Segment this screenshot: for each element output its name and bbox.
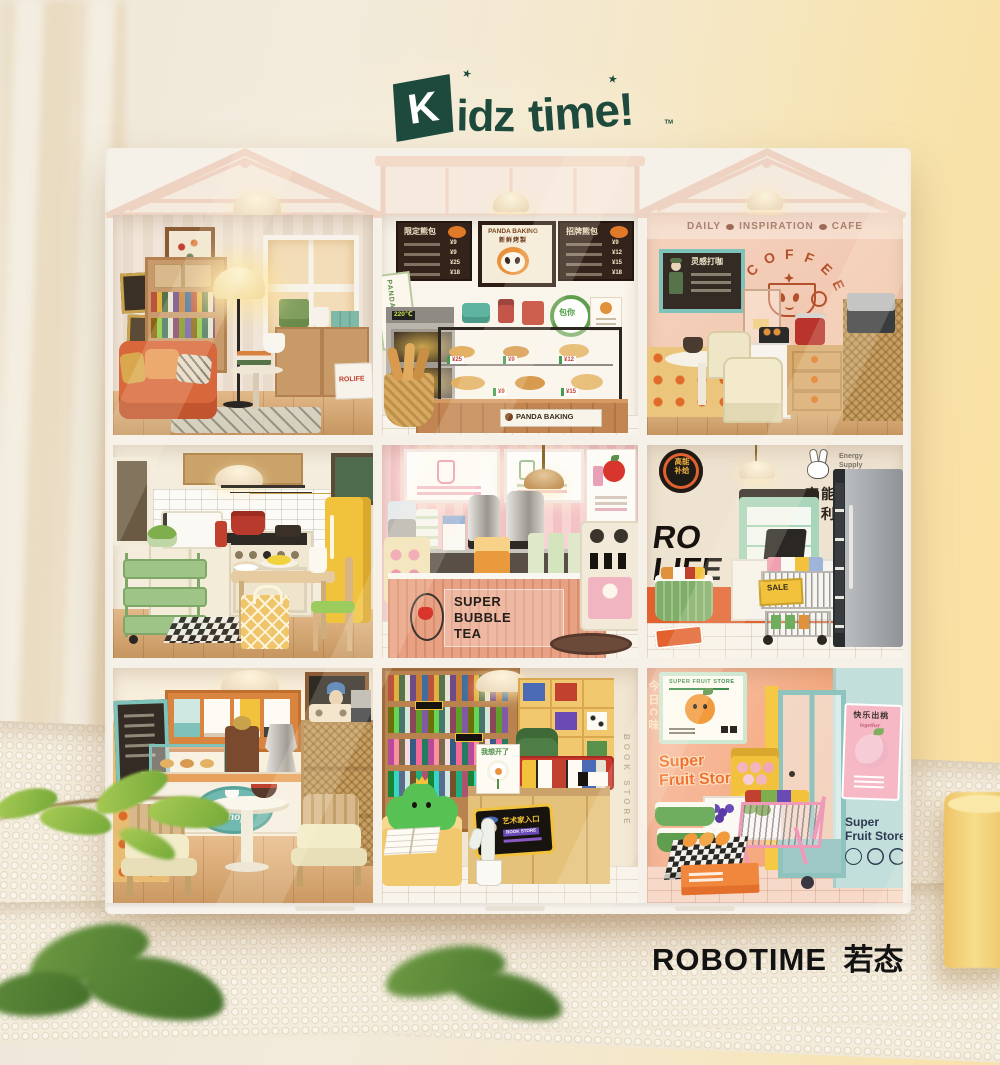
- open-comic: [384, 827, 441, 856]
- logo-time: time!: [527, 86, 635, 139]
- fruit-poster-smalltext: [669, 728, 695, 730]
- coffee-grinder: [225, 726, 259, 776]
- kitchen-window: [113, 457, 151, 545]
- star-icon: ★: [460, 68, 473, 81]
- pink-cart-basket: [737, 802, 826, 848]
- case-tag-4: ¥9: [493, 388, 507, 396]
- cake-stand: [462, 303, 490, 323]
- logo-k-block: K: [388, 74, 458, 142]
- market-en-2: Supply: [839, 462, 862, 469]
- price-3: ¥25: [450, 260, 460, 266]
- cafe-chair-front: [723, 357, 783, 423]
- dollhouse: ROLIFE 限定熊包 ¥9 ¥9 ¥25 ¥18 PANDA BAKING 新…: [105, 148, 911, 914]
- special-badge: [448, 226, 466, 238]
- cafe-menu-line-3: [691, 289, 731, 292]
- bread-display-case: ¥25 ¥9 ¥12 ¥9 ¥15: [438, 327, 622, 407]
- moka-pot: [265, 724, 297, 776]
- bunny-logo: [805, 449, 833, 479]
- orange-crate: [681, 863, 760, 896]
- chair-back: [345, 557, 353, 631]
- price-r1: ¥9: [612, 240, 619, 246]
- orange-leaf: [703, 688, 713, 695]
- wall-art-f1: F: [785, 247, 794, 261]
- bookstore-vertical-sign: BOOK STORE: [622, 734, 630, 828]
- teapot: [683, 337, 703, 353]
- price-2: ¥9: [450, 250, 457, 256]
- shopping-cart: SALE: [755, 565, 837, 647]
- menu-line-r2: [566, 253, 602, 256]
- shelf-tag-black-2: [455, 733, 483, 742]
- bakery-menu-right: 招牌熊包 ¥9 ¥12 ¥15 ¥18: [558, 221, 634, 281]
- fruit-side-line2: Fruit Store: [845, 830, 903, 842]
- white-jug: [313, 307, 329, 327]
- gray-fridge-handle: [849, 505, 853, 589]
- counter-sign-text: PANDA BAKING: [516, 413, 574, 421]
- coffee-machine-silver: [847, 293, 895, 333]
- candle-top: [948, 795, 1000, 813]
- wall-art-c: C: [744, 261, 761, 278]
- bakery-menu-center-title: PANDA BAKING: [482, 229, 544, 236]
- chair-legs: [313, 613, 318, 651]
- tomato-leaf: [611, 455, 619, 461]
- room-fruit-store: SUPER FRUIT STORE 今日C味 Super Fruit Store…: [647, 668, 903, 903]
- drawer-knob-1: [811, 356, 818, 363]
- bunny-card-icon: [600, 302, 612, 314]
- armchair-right-legs: [297, 866, 303, 886]
- round-sign-text: 包你: [559, 309, 575, 317]
- logo-idz: idz: [456, 94, 515, 139]
- machine-vents: [590, 529, 604, 543]
- sofa-cushion-orange: [145, 349, 179, 379]
- book-spines-top: [151, 292, 215, 312]
- book-stack: [237, 351, 271, 365]
- base-slot-2: [485, 906, 545, 911]
- cubby-box-red: [555, 683, 577, 701]
- bakery-menu-center-sub: 新鲜烤製: [482, 238, 544, 244]
- oven-display: 220℃: [392, 311, 415, 320]
- entrance-sign-line: [504, 837, 542, 843]
- menu-line-r4: [566, 273, 602, 276]
- case-shelf-line: [441, 364, 613, 366]
- market-badge: 高能补给: [659, 449, 703, 493]
- market-en-1: Energy: [839, 453, 863, 460]
- bubble-sign-line1: SUPER: [454, 595, 501, 608]
- price-r2: ¥12: [612, 250, 622, 256]
- entrance-sign-text: 艺术家入口: [502, 815, 540, 825]
- glass-word-inspiration: INSPIRATION: [739, 222, 814, 232]
- armchair-left-legs: [127, 876, 133, 896]
- bread-5: [515, 376, 545, 390]
- kitchen-chair: [311, 557, 365, 649]
- doodle-drink: [437, 460, 455, 484]
- white-kettle: [263, 333, 285, 353]
- bakery-menu-right-title: 招牌熊包: [566, 228, 598, 236]
- bakery-menu-left-title: 限定熊包: [404, 228, 436, 236]
- peaches-row: [737, 762, 748, 773]
- entrance-sign-sub: BOOK STORE: [503, 827, 540, 836]
- jam-jar: [498, 299, 514, 323]
- scrambled-eggs: [267, 555, 291, 565]
- machine-spouts: [590, 553, 598, 569]
- bakery-menu-center: PANDA BAKING 新鲜烤製: [478, 221, 556, 287]
- teal-crate: [331, 311, 359, 327]
- market-wall-ro: RO: [651, 521, 703, 553]
- wall-art-o: O: [762, 249, 777, 266]
- drawer-knob-2: [811, 376, 818, 383]
- market-badge-text: 高能补给: [674, 457, 690, 475]
- brand-cn: 若态: [844, 944, 904, 977]
- armchair-left-seat: [121, 858, 197, 876]
- espresso-machine-top: [351, 690, 371, 722]
- bread-4: [451, 376, 485, 390]
- orange-mascot: [685, 694, 715, 724]
- house-base: [105, 903, 911, 914]
- price-4: ¥18: [450, 270, 460, 276]
- rolife-box: ROLIFE: [334, 362, 373, 399]
- pendant-lamp-right: [747, 190, 783, 210]
- room-living: ROLIFE: [113, 215, 373, 435]
- shelf-tag-black-1: [415, 701, 443, 710]
- coffee-bean-icon: [819, 224, 827, 230]
- sofa: [119, 341, 217, 419]
- cart-wheel-left: [129, 635, 138, 644]
- tea-cup: [225, 790, 239, 798]
- coffee-bean-icon: [726, 224, 734, 230]
- sofa-cushion-pattern: [176, 353, 213, 384]
- diamond-bag: [241, 595, 289, 649]
- bread-plate: [233, 561, 259, 571]
- cafe-menu-board: 灵感打咖: [659, 249, 745, 313]
- poster-card-teal: [174, 699, 200, 737]
- drawer-knob-3: [811, 396, 818, 403]
- fruit-poster: SUPER FRUIT STORE: [659, 672, 747, 744]
- daisy-center: [495, 768, 502, 775]
- cloud-eyes: [412, 802, 417, 808]
- sofa-cushion-gold: [119, 351, 147, 384]
- fruit-left-vertical: 今日C味: [647, 680, 658, 733]
- logo-tm: TM: [664, 120, 673, 126]
- strawberry-face: [418, 607, 433, 620]
- table-pedestal: [241, 810, 253, 866]
- peach-leaf: [874, 728, 884, 735]
- panda-icon-small: [505, 413, 513, 421]
- green-basket: [655, 575, 713, 621]
- qr-sticker: [578, 772, 608, 786]
- basket-goods: [661, 567, 705, 579]
- cup-eye-right: [792, 292, 800, 302]
- radio: [309, 704, 353, 722]
- base-slot-3: [675, 906, 735, 911]
- room-kitchen: [113, 445, 373, 658]
- cart-wheels: [763, 635, 773, 645]
- bubble-lamp: [542, 445, 545, 471]
- sauce-dispenser: [522, 301, 544, 325]
- bread-basket: [384, 373, 434, 427]
- door-knob: [789, 771, 795, 777]
- yellow-candle: [944, 792, 1000, 968]
- bag-handle: [253, 585, 283, 604]
- scene: ROLIFE 限定熊包 ¥9 ¥9 ¥25 ¥18 PANDA BAKING 新…: [0, 0, 1000, 1000]
- gray-fridge: [833, 469, 903, 647]
- cafe-menu-title: 灵感打咖: [691, 258, 723, 266]
- price-r3: ¥15: [612, 260, 622, 266]
- menu-line-r1: [566, 243, 602, 246]
- fruit-side-line1: Super: [845, 816, 879, 828]
- glass-word-daily: DAILY: [687, 222, 721, 232]
- bubble-sign-line2: BUBBLE: [454, 611, 511, 624]
- wall-art-f2: F: [803, 250, 816, 266]
- cactus-pot: [476, 860, 502, 886]
- wall-art-e2: E: [830, 278, 847, 293]
- doodle-lines: [417, 486, 481, 489]
- floor-lamp-shade: [213, 267, 265, 299]
- pendant-lamp-middle: [493, 192, 529, 212]
- poster-drink: [593, 466, 603, 486]
- coffee-machine-green: [279, 299, 309, 327]
- room-bakery: 限定熊包 ¥9 ¥9 ¥25 ¥18 PANDA BAKING 新鲜烤製: [382, 215, 638, 435]
- utensil-rail: [221, 485, 305, 488]
- kidztime-logo: K idz time! ★ ★ TM: [391, 47, 683, 148]
- cubby-box-purple: [555, 712, 577, 730]
- tomato-mascot: [603, 460, 625, 482]
- cart-tray-1: [123, 559, 207, 579]
- barista-apron: [669, 272, 683, 294]
- daisy-poster-text: 我想开了: [481, 749, 509, 756]
- tomato-poster: [586, 449, 636, 523]
- menu-line-3: [404, 263, 440, 266]
- price-r4: ¥18: [612, 270, 622, 276]
- fruit-poster-squares: [721, 726, 728, 733]
- peach-shape: [854, 733, 889, 768]
- room-market: 高能补给 Energy Supply Store 高能补给 便利店 RO LIF…: [647, 445, 903, 658]
- icecream-panel: [588, 577, 632, 619]
- case-tag-3: ¥12: [559, 356, 576, 364]
- stove-knobs: [235, 551, 243, 559]
- cafe-table-stem: [698, 363, 706, 405]
- burner-pan: [275, 525, 301, 537]
- armchair-right-seat: [291, 848, 367, 866]
- red-pot: [231, 511, 265, 535]
- croissants: [160, 759, 174, 768]
- wall-art-e1: E: [818, 261, 834, 278]
- cafe-glass-band: DAILY INSPIRATION CAFE: [647, 215, 903, 239]
- daisy-stem: [497, 779, 499, 789]
- cactus-body: [481, 818, 495, 864]
- menu-line-1: [404, 243, 440, 246]
- cloud-body: [388, 804, 456, 830]
- room-book-store: Book Store 我想开了 艺术家入口 BOOK STORE: [382, 668, 638, 903]
- cart-tray-2: [123, 587, 207, 607]
- board-lines: [124, 714, 154, 718]
- lettuce-bowl: [147, 525, 177, 547]
- bunny-card-line: [596, 318, 616, 320]
- logo-k: K: [405, 85, 441, 131]
- fridge-handle: [330, 515, 334, 559]
- case-tag-5: ¥15: [561, 388, 578, 396]
- star-icon: ★: [607, 74, 618, 86]
- daisy-poster: 我想开了: [476, 744, 520, 794]
- market-lamp: [739, 461, 775, 479]
- cubby-dice: [587, 712, 607, 730]
- milk-cartons: [442, 515, 466, 551]
- cup-smile: [785, 303, 794, 310]
- sale-sign-text: SALE: [767, 583, 789, 592]
- best-badge: [610, 226, 628, 238]
- peach-poster-lines: [854, 775, 884, 778]
- cafe-menu-line-2: [691, 281, 731, 284]
- rolife-box-label: ROLIFE: [339, 376, 365, 384]
- peach-poster: 快乐出桃 together: [841, 703, 902, 801]
- menu-line-2: [404, 253, 440, 256]
- cup-handle: [811, 291, 827, 307]
- cafe-menu-line-1: [691, 273, 731, 276]
- armchair-right: [281, 794, 367, 886]
- floor-lamp-base: [223, 401, 253, 408]
- chair-cushion: [311, 601, 355, 613]
- poster-lines: [595, 496, 627, 499]
- cubby-box-blue: [523, 683, 545, 701]
- orange-eyes: [693, 704, 697, 709]
- menu-line-r3: [566, 263, 602, 266]
- drawer-cabinet: [787, 345, 843, 415]
- icecream-machine: [580, 521, 638, 631]
- case-tag-2: ¥9: [503, 356, 517, 364]
- room-cafe: DAILY INSPIRATION CAFE I C O F F E E: [647, 215, 903, 435]
- table-foot: [225, 862, 269, 872]
- fruit-poster-rule: [669, 688, 729, 690]
- peach-poster-title: 快乐出桃: [853, 711, 889, 720]
- ketchup-bottle: [215, 521, 227, 547]
- floor-mat: [550, 633, 632, 655]
- bubble-sign-line3: TEA: [454, 627, 482, 640]
- fruit-poster-header: SUPER FRUIT STORE: [669, 680, 735, 686]
- book-spines-mid: [151, 318, 215, 338]
- bakery-counter: PANDA BAKING: [416, 399, 628, 433]
- bookshelf-row-2: [388, 707, 508, 733]
- price-1: ¥9: [450, 240, 457, 246]
- room-bubble-tea: SUPER BUBBLE TEA: [382, 445, 638, 658]
- green-basket-top: [655, 802, 715, 826]
- case-tag-1: ¥25: [447, 356, 464, 364]
- brand-lockup: ROBOTIME 若态: [652, 944, 904, 976]
- barista-cap: [670, 258, 682, 263]
- base-slot-1: [295, 906, 355, 911]
- steam-flower: [784, 273, 794, 283]
- orange-crate-label: [689, 872, 723, 876]
- fridge-inner-shelves: [835, 483, 844, 633]
- bunny-head: [807, 461, 829, 479]
- glass-word-cafe: CAFE: [832, 222, 863, 232]
- fruit-wall-line1: Super: [659, 753, 705, 771]
- brand-name: ROBOTIME: [652, 942, 827, 977]
- bunny-card-sign: [590, 297, 622, 331]
- espresso-machine-red: [795, 313, 825, 345]
- cardboard-box: [154, 264, 212, 288]
- white-cactus: [468, 818, 506, 888]
- grinder-hopper: [233, 716, 251, 730]
- fruit-side-badges: [845, 848, 862, 865]
- side-table-leg: [253, 373, 259, 409]
- fruit-wall-line2: Fruit Store: [659, 771, 740, 790]
- cart-bottles: [771, 615, 781, 629]
